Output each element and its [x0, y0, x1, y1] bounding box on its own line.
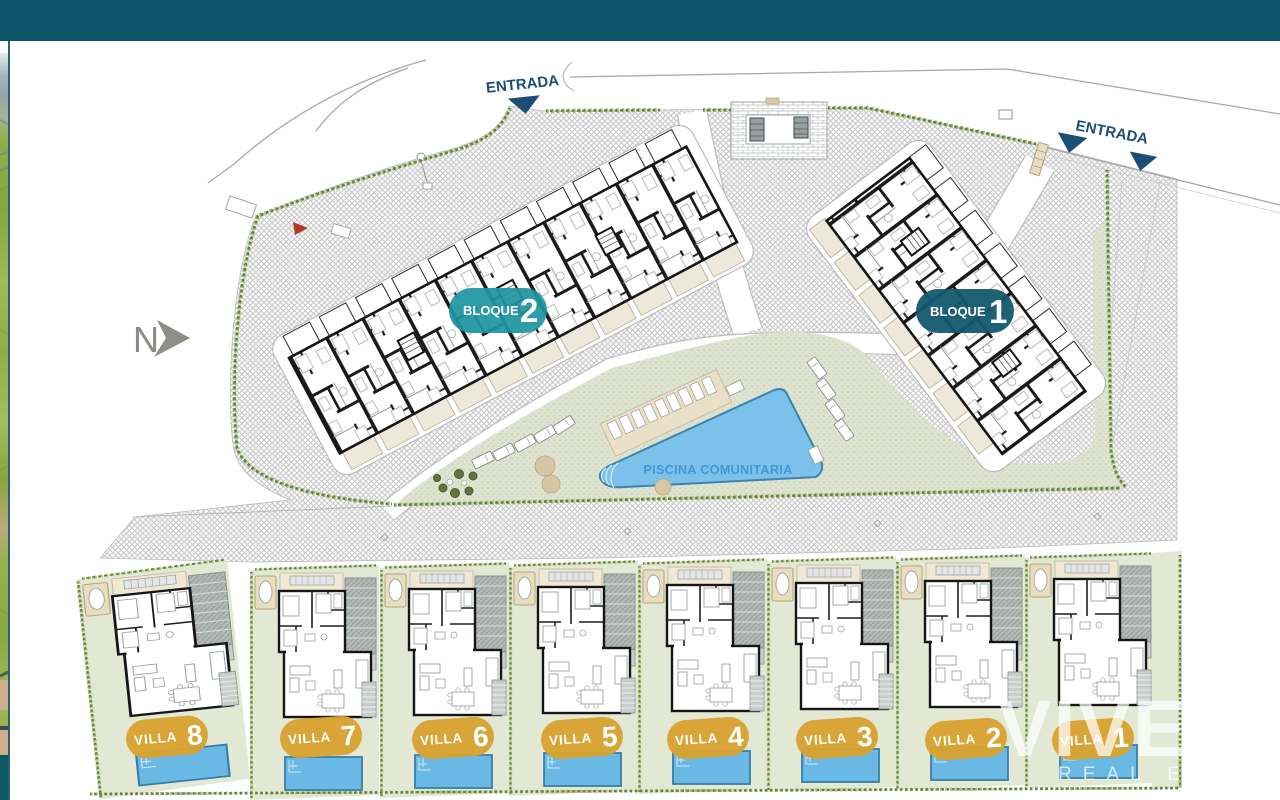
svg-text:BLOQUE: BLOQUE — [930, 304, 986, 319]
svg-text:VILLA: VILLA — [288, 729, 332, 747]
svg-text:VILLA: VILLA — [804, 730, 848, 748]
svg-text:PISCINA COMUNITARIA: PISCINA COMUNITARIA — [643, 463, 792, 477]
svg-text:VILLA: VILLA — [675, 730, 719, 748]
svg-text:N: N — [133, 319, 159, 360]
svg-text:7: 7 — [340, 720, 358, 752]
svg-text:VILLA: VILLA — [549, 730, 593, 748]
svg-text:4: 4 — [727, 721, 745, 753]
svg-text:1: 1 — [989, 293, 1007, 330]
svg-text:VILLA: VILLA — [420, 730, 464, 748]
svg-text:VILLA: VILLA — [933, 731, 977, 749]
svg-text:2: 2 — [520, 292, 538, 329]
svg-text:3: 3 — [856, 721, 874, 753]
svg-text:REAL ESTATE: REAL ESTATE — [1058, 764, 1280, 785]
svg-text:VIVE: VIVE — [998, 684, 1188, 773]
svg-text:5: 5 — [601, 721, 619, 753]
svg-text:8: 8 — [186, 719, 204, 751]
svg-text:BLOQUE: BLOQUE — [463, 303, 519, 318]
svg-text:6: 6 — [472, 721, 490, 753]
